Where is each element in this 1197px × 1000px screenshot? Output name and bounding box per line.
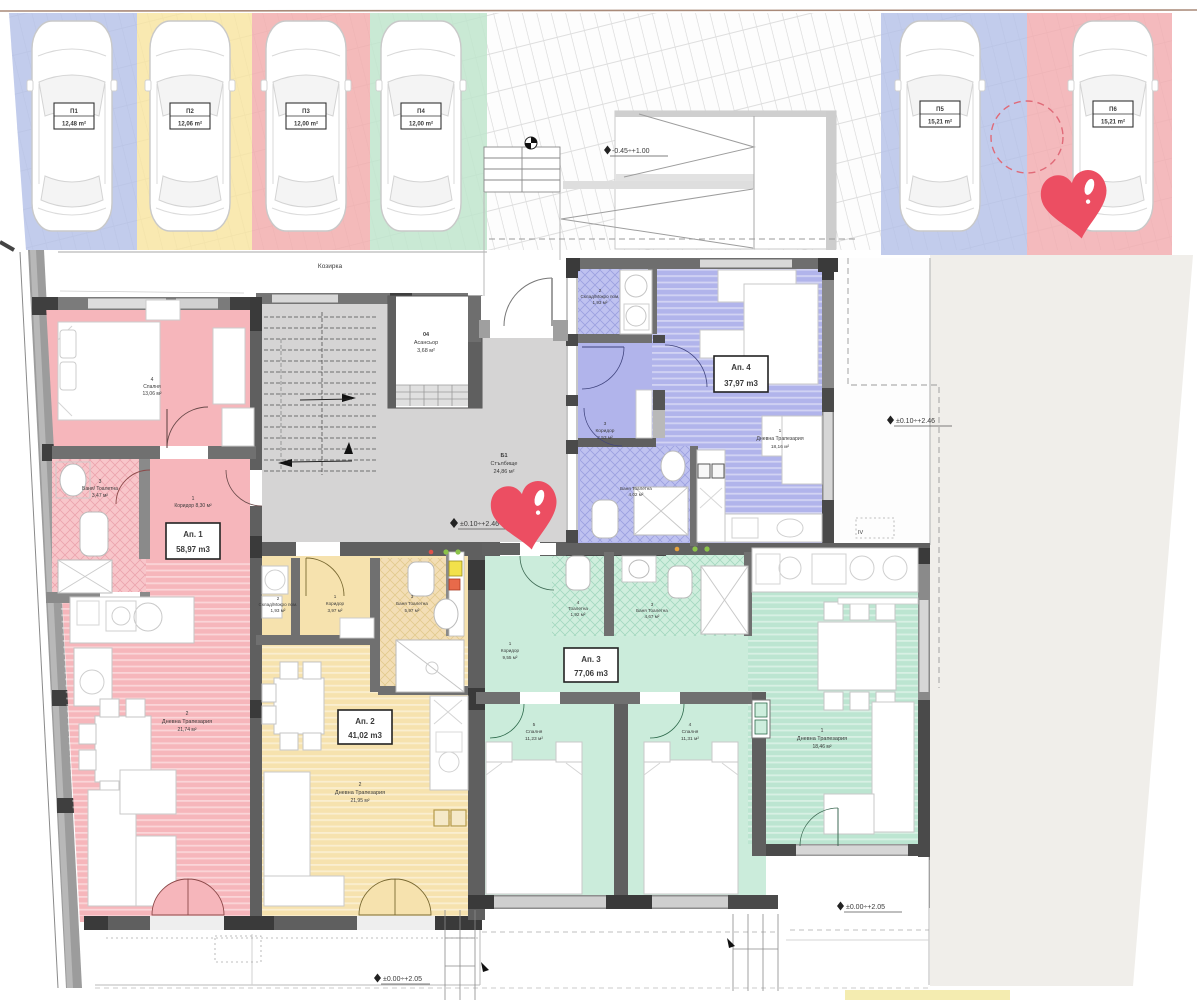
svg-text:Ап. 4: Ап. 4: [731, 363, 751, 372]
svg-text:3: 3: [651, 602, 654, 607]
svg-text:12,00 m²: 12,00 m²: [409, 121, 433, 128]
svg-text:2: 2: [359, 782, 362, 788]
svg-text:Ап. 3: Ап. 3: [581, 655, 601, 664]
svg-text:1: 1: [779, 428, 782, 434]
svg-text:Баня Тоалетна: Баня Тоалетна: [636, 608, 668, 613]
svg-text:4: 4: [577, 600, 580, 605]
svg-text:24,86 м²: 24,86 м²: [494, 469, 515, 475]
svg-text:15,21 m²: 15,21 m²: [928, 119, 952, 126]
svg-text:21,74 м²: 21,74 м²: [177, 727, 196, 733]
svg-text:П1: П1: [70, 109, 78, 115]
svg-text:58,97 m3: 58,97 m3: [176, 545, 210, 554]
svg-text:1,93 м²: 1,93 м²: [271, 608, 286, 613]
svg-text:3,47 м²: 3,47 м²: [92, 493, 109, 499]
svg-text:18,46 м²: 18,46 м²: [812, 744, 831, 750]
svg-text:4,02 м²: 4,02 м²: [629, 492, 644, 497]
svg-text:Склад/Мокро пом.: Склад/Мокро пом.: [259, 602, 298, 607]
svg-text:11,23 м²: 11,23 м²: [525, 736, 543, 742]
svg-text:Б1: Б1: [500, 453, 507, 459]
svg-text:Баня/ Тоалетна: Баня/ Тоалетна: [82, 486, 118, 492]
svg-text:±0.10÷+2.46: ±0.10÷+2.46: [896, 418, 935, 425]
svg-text:18,16 м²: 18,16 м²: [771, 444, 790, 450]
svg-text:П6: П6: [1109, 107, 1117, 113]
svg-text:3: 3: [99, 479, 102, 485]
svg-text:5,97 м²: 5,97 м²: [405, 608, 420, 613]
svg-text:Коридор: Коридор: [596, 428, 615, 434]
svg-text:3,68 м²: 3,68 м²: [417, 348, 435, 354]
svg-text:Козирка: Козирка: [318, 263, 343, 270]
svg-text:-0.45÷+1.00: -0.45÷+1.00: [612, 148, 650, 155]
svg-text:Асансьор: Асансьор: [414, 340, 438, 346]
svg-text:Коридор: Коридор: [326, 601, 345, 606]
svg-text:Спалня: Спалня: [682, 729, 699, 735]
svg-text:2,53 м²: 2,53 м²: [597, 435, 613, 441]
svg-text:2: 2: [599, 288, 602, 293]
svg-text:Дневна Трапезария: Дневна Трапезария: [335, 790, 385, 796]
svg-text:1: 1: [821, 728, 824, 734]
svg-text:12,48 m²: 12,48 m²: [62, 121, 86, 128]
svg-text:21,95 м²: 21,95 м²: [350, 798, 369, 804]
svg-text:IV: IV: [858, 530, 864, 536]
svg-text:±0.00÷+2.05: ±0.00÷+2.05: [383, 976, 422, 983]
svg-text:Спалня: Спалня: [143, 384, 161, 390]
svg-text:1,92 м²: 1,92 м²: [571, 612, 586, 617]
svg-text:4: 4: [689, 722, 692, 728]
svg-text:13,06 м²: 13,06 м²: [142, 391, 161, 397]
svg-text:77,06 m3: 77,06 m3: [574, 669, 608, 678]
svg-text:04: 04: [423, 332, 430, 338]
svg-text:2: 2: [277, 596, 280, 601]
svg-text:11,31 м²: 11,31 м²: [681, 736, 699, 742]
svg-text:Коридор 8,30 м²: Коридор 8,30 м²: [174, 503, 212, 509]
svg-text:Ап. 2: Ап. 2: [355, 717, 375, 726]
svg-text:П4: П4: [417, 109, 425, 115]
svg-text:3: 3: [604, 421, 607, 427]
svg-text:15,21 m²: 15,21 m²: [1101, 119, 1125, 126]
svg-text:Склад/Мокро пом.: Склад/Мокро пом.: [581, 294, 620, 299]
svg-text:П2: П2: [186, 109, 194, 115]
svg-text:3: 3: [411, 594, 414, 599]
svg-text:9,55 м²: 9,55 м²: [503, 655, 518, 660]
svg-text:1: 1: [334, 594, 337, 599]
svg-text:Тоалетна: Тоалетна: [568, 606, 588, 611]
svg-text:3,97 м²: 3,97 м²: [328, 608, 343, 613]
svg-text:П3: П3: [302, 109, 310, 115]
svg-text:41,02 m3: 41,02 m3: [348, 731, 382, 740]
svg-text:±0.00÷+2.05: ±0.00÷+2.05: [846, 904, 885, 911]
svg-text:Баня Тоалетна: Баня Тоалетна: [396, 601, 428, 606]
svg-text:Дневна Трапезария: Дневна Трапезария: [797, 736, 847, 742]
svg-text:37,97 m3: 37,97 m3: [724, 379, 758, 388]
svg-text:2: 2: [186, 711, 189, 717]
svg-text:1: 1: [192, 496, 195, 502]
svg-text:Спалня: Спалня: [526, 729, 543, 735]
svg-text:Коридор: Коридор: [501, 648, 520, 653]
svg-text:12,00 m²: 12,00 m²: [294, 121, 318, 128]
svg-text:4: 4: [151, 377, 154, 383]
svg-text:1: 1: [509, 641, 512, 646]
svg-text:±0.10÷+2.46: ±0.10÷+2.46: [460, 521, 499, 528]
svg-text:12,06 m²: 12,06 m²: [178, 121, 202, 128]
svg-text:Баня Тоалетна: Баня Тоалетна: [620, 486, 652, 491]
svg-text:Дневна Трапезария: Дневна Трапезария: [756, 436, 803, 442]
svg-text:Ап. 1: Ап. 1: [183, 530, 203, 539]
svg-text:1,93 м²: 1,93 м²: [593, 300, 608, 305]
svg-text:Стълбище: Стълбище: [491, 461, 518, 467]
svg-text:П5: П5: [936, 107, 944, 113]
svg-text:Дневна Трапезария: Дневна Трапезария: [162, 719, 212, 725]
svg-text:5: 5: [533, 722, 536, 728]
svg-text:4,67 м²: 4,67 м²: [645, 614, 660, 619]
